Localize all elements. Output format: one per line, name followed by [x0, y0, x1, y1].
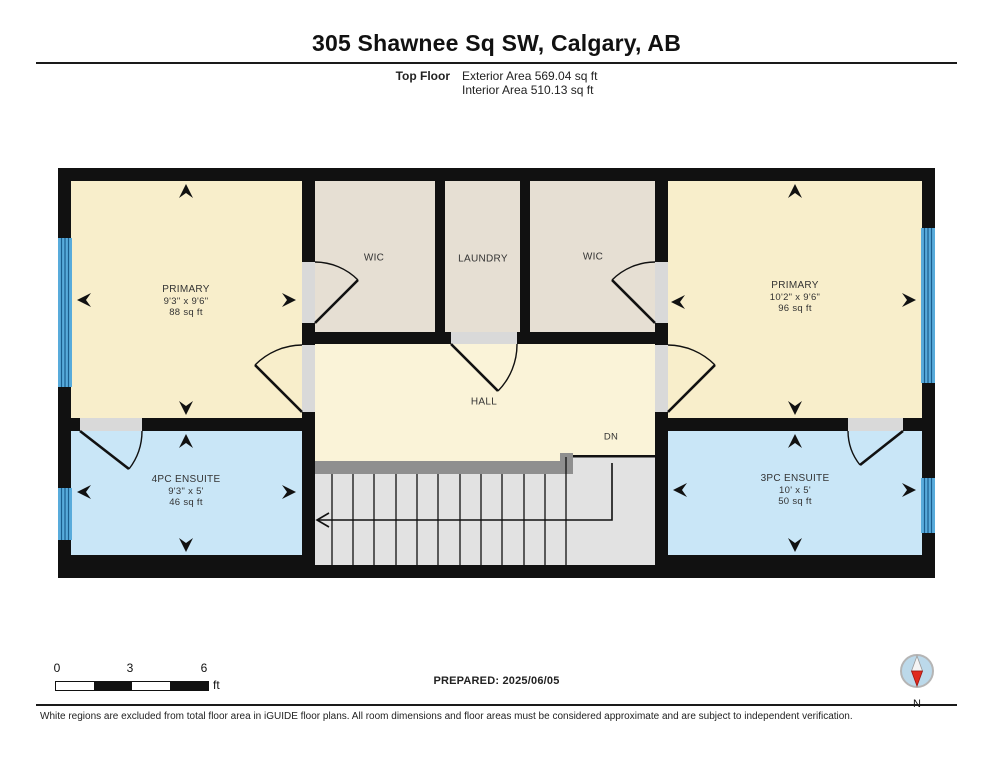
floor-name: Top Floor [396, 69, 450, 83]
label-stairs-dn: DN [604, 431, 618, 443]
label-ensuite-3pc: 3PC ENSUITE 10' x 5' 50 sq ft [761, 473, 830, 508]
stairs [315, 453, 655, 565]
window-ensuite-right [921, 478, 935, 533]
label-ensuite-4pc: 4PC ENSUITE 9'3" x 5' 46 sq ft [152, 474, 221, 509]
scale-tick-6: 6 [196, 661, 212, 675]
label-wic-left: WIC [364, 252, 384, 264]
scale-tick-0: 0 [49, 661, 65, 675]
compass-icon [899, 652, 935, 696]
window-ensuite-left [58, 488, 72, 540]
header-divider [36, 62, 957, 64]
window-primary-left [58, 238, 72, 387]
page-title: 305 Shawnee Sq SW, Calgary, AB [0, 30, 993, 57]
window-primary-right [921, 228, 935, 383]
landing-edge [573, 455, 655, 458]
stair-landing [566, 457, 655, 565]
label-wic-right: WIC [583, 251, 603, 263]
footer-disclaimer: White regions are excluded from total fl… [40, 711, 970, 722]
prepared-date: PREPARED: 2025/06/05 [0, 675, 993, 687]
stair-railing [315, 461, 560, 474]
floor-plan [58, 168, 935, 578]
interior-area: Interior Area 510.13 sq ft [462, 83, 597, 97]
label-laundry: LAUNDRY [458, 253, 508, 265]
floor-summary: Top Floor Exterior Area 569.04 sq ft Int… [0, 69, 993, 97]
scale-tick-3: 3 [122, 661, 138, 675]
hall-room-edge [315, 455, 560, 461]
exterior-area: Exterior Area 569.04 sq ft [462, 69, 597, 83]
footer-divider [36, 704, 957, 706]
label-primary-right: PRIMARY 10'2" x 9'6" 96 sq ft [770, 280, 820, 315]
label-hall: HALL [471, 396, 497, 408]
label-primary-left: PRIMARY 9'3" x 9'6" 88 sq ft [162, 284, 209, 319]
